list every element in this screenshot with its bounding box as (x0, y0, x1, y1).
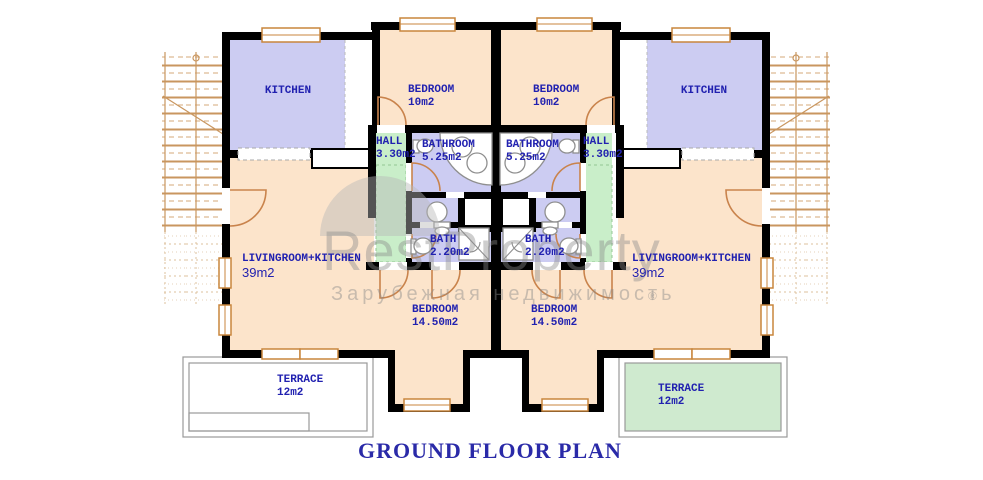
label-hall-right: HALL 3.30m2 (583, 136, 623, 162)
floor-plan-drawing (0, 0, 983, 480)
corridor-right (582, 165, 612, 262)
label-bath-right: BATH 2.20m2 (525, 234, 565, 260)
terrace-door-left (262, 349, 338, 359)
window-living-left-2 (219, 305, 231, 335)
toilet-icon-wc-left (427, 202, 447, 222)
staircase-left (162, 52, 224, 306)
label-kitchen-right: KITCHEN (666, 85, 742, 98)
pass-through-right (623, 149, 680, 168)
shaft-right (503, 199, 529, 225)
shaft-left (465, 199, 491, 225)
room-bedroom-small-right-floor (500, 30, 612, 125)
window-kitchen-right (672, 28, 730, 42)
label-terrace-right: TERRACE 12m2 (658, 383, 704, 409)
floor-plan-page: RestProperty Зарубежная недвижимость ® K… (0, 0, 983, 480)
corridor-left (376, 165, 406, 262)
label-bedroom-large-right: BEDROOM 14.50m2 (531, 304, 577, 330)
label-living-left: LIVINGROOM+KITCHEN 39m2 (242, 253, 361, 279)
staircase-right (768, 52, 830, 306)
label-kitchen-left: KITCHEN (250, 85, 326, 98)
terrace-door-right (654, 349, 730, 359)
window-bedroom-small-right (537, 18, 592, 31)
window-bedroom-small-left (400, 18, 455, 31)
label-terrace-left: TERRACE 12m2 (277, 374, 323, 400)
label-bedroom-small-right: BEDROOM 10m2 (533, 84, 579, 110)
pass-through-left (312, 149, 369, 168)
window-bay-left (404, 399, 450, 411)
window-living-left-1 (219, 258, 231, 288)
label-living-right: LIVINGROOM+KITCHEN 39m2 (632, 253, 751, 279)
label-hall-left: HALL 3.30m2 (376, 136, 416, 162)
toilet-icon-bath-left (411, 238, 432, 254)
window-living-right-2 (761, 305, 773, 335)
label-bathroom-left: BATHROOM 5.25m2 (422, 139, 475, 165)
label-bedroom-large-left: BEDROOM 14.50m2 (412, 304, 458, 330)
label-bedroom-small-left: BEDROOM 10m2 (408, 84, 454, 110)
entry-strip-right (620, 40, 647, 150)
window-bay-right (542, 399, 588, 411)
window-kitchen-left (262, 28, 320, 42)
page-title: GROUND FLOOR PLAN (340, 438, 640, 464)
label-bath-left: BATH 2.20m2 (430, 234, 470, 260)
toilet-icon-wc-right (545, 202, 565, 222)
label-bathroom-right: BATHROOM 5.25m2 (506, 139, 559, 165)
room-bedroom-small-left-floor (380, 30, 492, 125)
sink-icon-bathroom-right (559, 139, 579, 153)
entry-strip-left (345, 40, 372, 150)
window-living-right-1 (761, 258, 773, 288)
